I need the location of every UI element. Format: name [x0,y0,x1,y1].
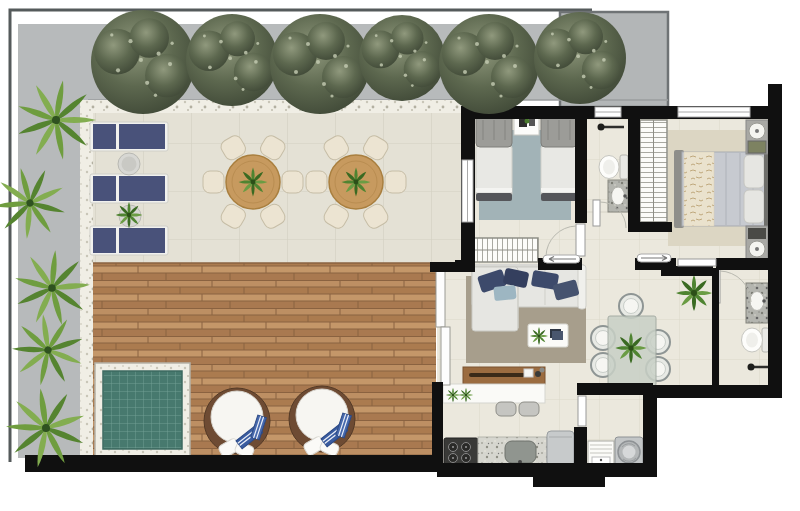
tree [186,14,278,106]
nightstand-with-lamp [746,120,768,154]
window [678,107,750,117]
bar-stool [496,402,516,416]
toilet [599,155,628,179]
tree [359,15,445,101]
wardrobe [473,238,538,262]
side-table-plant [116,202,142,228]
master-closet [640,120,667,222]
tree [439,14,539,114]
sun-lounger [90,226,168,255]
hall-plant [676,275,712,311]
kitchen-sink-counter [478,437,547,466]
fridge [547,431,574,466]
plunge-pool [95,363,190,457]
tree [270,14,370,114]
sideboard-bar [463,367,545,384]
twin-bed [541,115,577,201]
twin-bed [476,115,512,201]
lounger-side-table [116,202,142,228]
door-arrow-pill [637,254,671,262]
sun-lounger [90,174,168,203]
stove [444,438,478,466]
sun-lounger [90,122,168,151]
table-plant [615,332,646,363]
floor-plan [0,0,800,511]
sink-counter [746,283,768,323]
sink-counter [608,180,628,212]
nightstand-with-lamp [746,226,768,260]
master-sliding-door [678,259,716,266]
bar-stool [519,402,539,416]
window [462,160,473,222]
door-arrow-pill [543,255,580,263]
terrazzo-border-left [80,100,93,455]
laundry-door [578,396,586,426]
tree [534,12,626,104]
toilet [742,328,770,352]
left-planter-path [18,24,88,458]
laundry-tank [588,441,614,466]
coffee-table [528,324,568,347]
floor-plan-canvas [0,0,800,511]
window [595,107,621,117]
lounger-side-table [118,153,140,175]
bar-counter [443,384,545,403]
terrace-bottom-wall [25,455,440,472]
tree [91,10,195,114]
double-bed [674,150,769,229]
